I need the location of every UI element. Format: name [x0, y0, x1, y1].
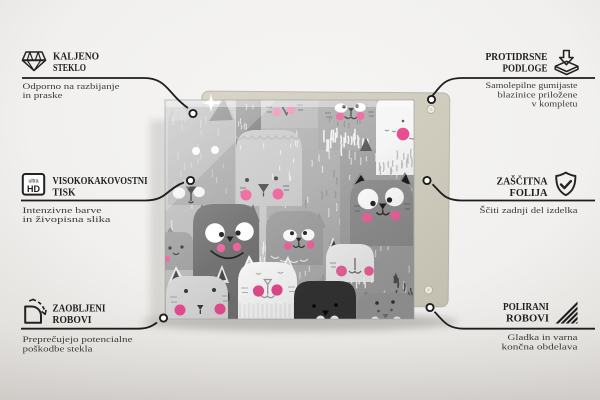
svg-text:STEKLO: STEKLO — [53, 63, 86, 74]
svg-text:KALJENO: KALJENO — [53, 52, 99, 63]
svg-text:POLIRANI: POLIRANI — [503, 302, 549, 313]
svg-text:ZAŠČITNA: ZAŠČITNA — [497, 175, 549, 188]
svg-text:poškodbe stekla: poškodbe stekla — [23, 344, 93, 354]
svg-text:PODLOGE: PODLOGE — [503, 64, 548, 75]
svg-text:končna obdelava: končna obdelava — [502, 342, 578, 352]
svg-text:v kompletu: v kompletu — [532, 99, 579, 109]
svg-text:Preprečujejo potencialne: Preprečujejo potencialne — [23, 334, 133, 344]
svg-text:in praske: in praske — [23, 90, 63, 100]
svg-text:PROTIDRSNE: PROTIDRSNE — [486, 52, 548, 63]
svg-text:ROBOVI: ROBOVI — [506, 314, 549, 325]
svg-text:HD: HD — [27, 184, 40, 194]
svg-text:TISK: TISK — [53, 187, 76, 198]
svg-text:Ščiti zadnji del izdelka: Ščiti zadnji del izdelka — [480, 205, 578, 215]
svg-text:ZAOBLJENI: ZAOBLJENI — [53, 304, 106, 315]
svg-text:VISOKOKAKOVOSTNI: VISOKOKAKOVOSTNI — [53, 176, 148, 187]
svg-text:in živopisna slika: in živopisna slika — [23, 214, 111, 224]
svg-text:Gladka in varna: Gladka in varna — [508, 332, 578, 342]
svg-text:ROBOVI: ROBOVI — [53, 315, 92, 326]
svg-text:FOLIJA: FOLIJA — [510, 188, 549, 199]
